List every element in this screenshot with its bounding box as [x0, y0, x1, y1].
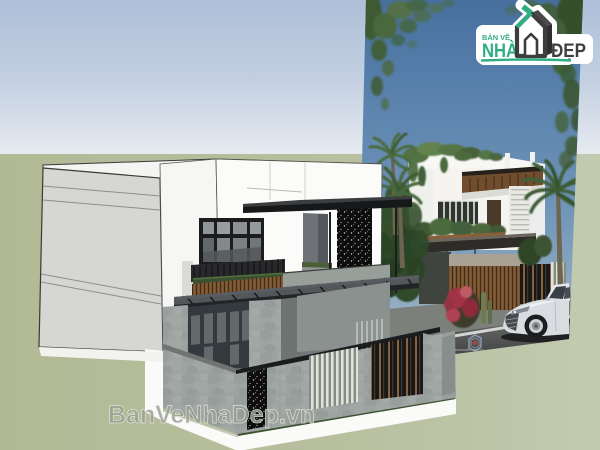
- svg-text:BanVeNhaDep.vn: BanVeNhaDep.vn: [108, 401, 315, 429]
